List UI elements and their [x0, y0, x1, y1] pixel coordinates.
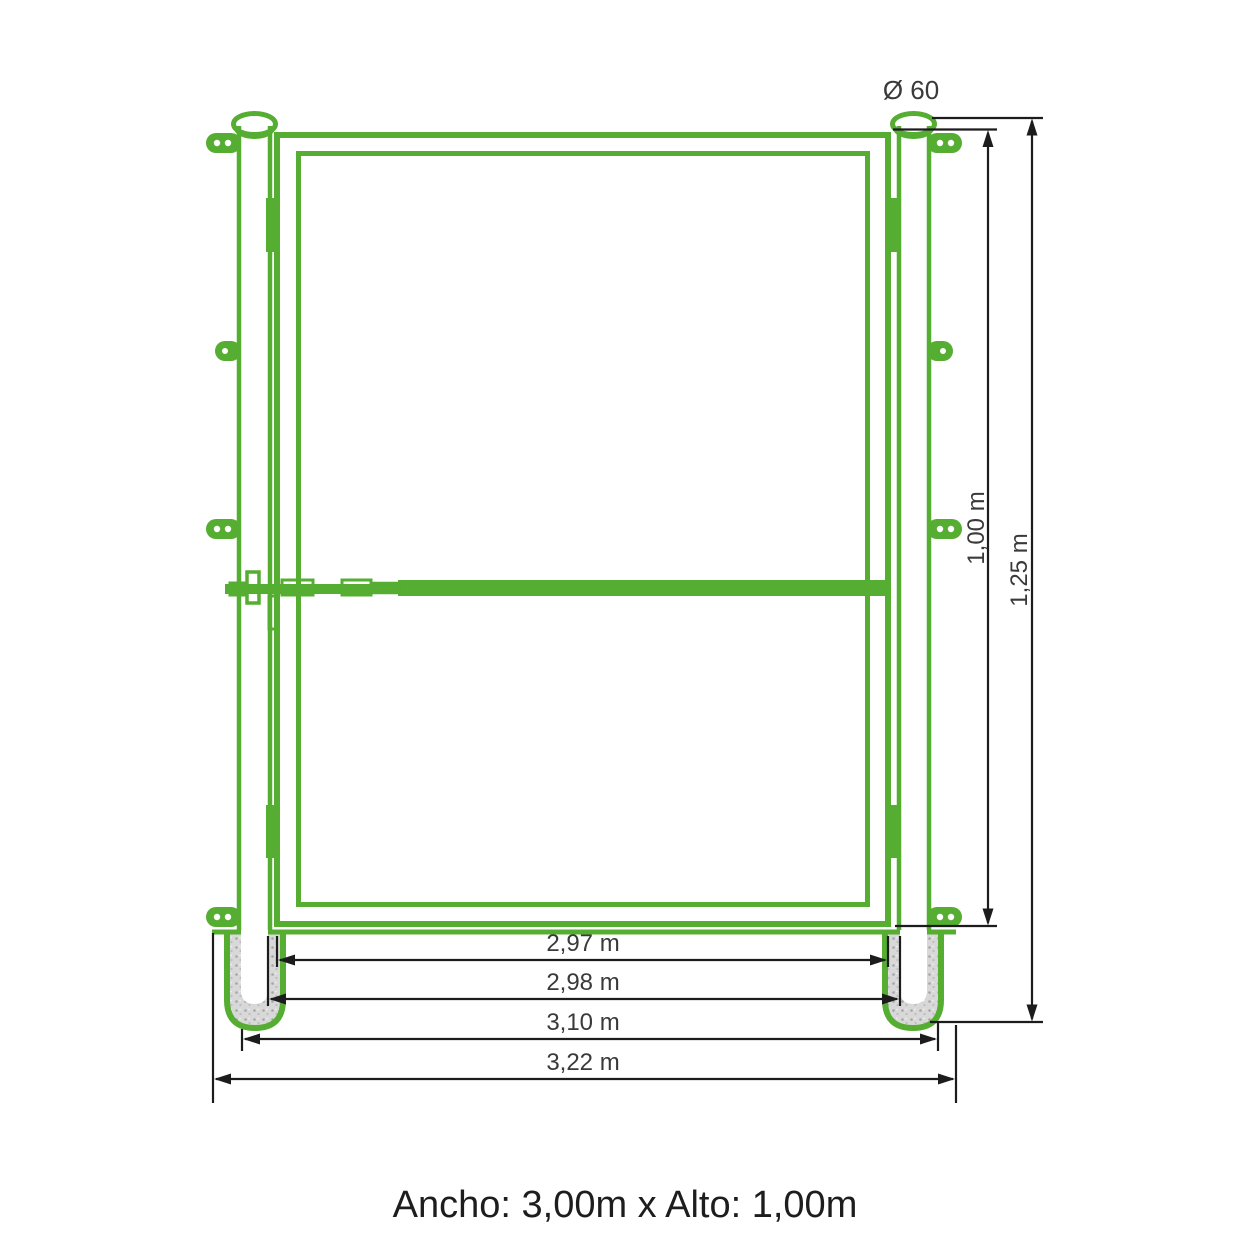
left-post-tabs	[206, 133, 241, 927]
post-diameter-label: Ø 60	[883, 75, 939, 105]
dimension-width-centers: 3,10 m	[242, 1009, 938, 1051]
gate-diagram-page: 1,00 m 1,25 m 2,97 m 2,98 m 3,10 m	[0, 0, 1250, 1250]
hinge-bottom-left	[266, 805, 279, 858]
width-overall-label: 3,22 m	[546, 1049, 619, 1076]
hinge-top-left	[266, 198, 279, 252]
hinge-bottom-right	[886, 805, 898, 858]
width-centers-label: 3,10 m	[546, 1009, 619, 1036]
width-gate-label: 2,97 m	[546, 930, 619, 957]
height-total-label: 1,25 m	[1006, 533, 1033, 606]
width-clear-label: 2,98 m	[546, 969, 619, 996]
latch-drop-rod	[269, 596, 278, 629]
caption: Ancho: 3,00m x Alto: 1,00m	[393, 1184, 858, 1226]
middle-rail	[398, 580, 885, 596]
left-post-tube	[241, 124, 268, 1004]
right-post-tube	[900, 124, 927, 1004]
dimension-width-gate: 2,97 m	[277, 930, 888, 967]
dimension-height-total: 1,25 m	[930, 118, 1043, 1022]
height-gate-label: 1,00 m	[963, 491, 990, 564]
gate-leaf	[225, 135, 898, 924]
right-post-tabs	[927, 133, 962, 927]
gate-diagram: 1,00 m 1,25 m 2,97 m 2,98 m 3,10 m	[0, 0, 1250, 1250]
hinge-top-right	[886, 198, 898, 252]
mesh-panel	[299, 154, 868, 905]
gate-frame	[277, 135, 888, 924]
